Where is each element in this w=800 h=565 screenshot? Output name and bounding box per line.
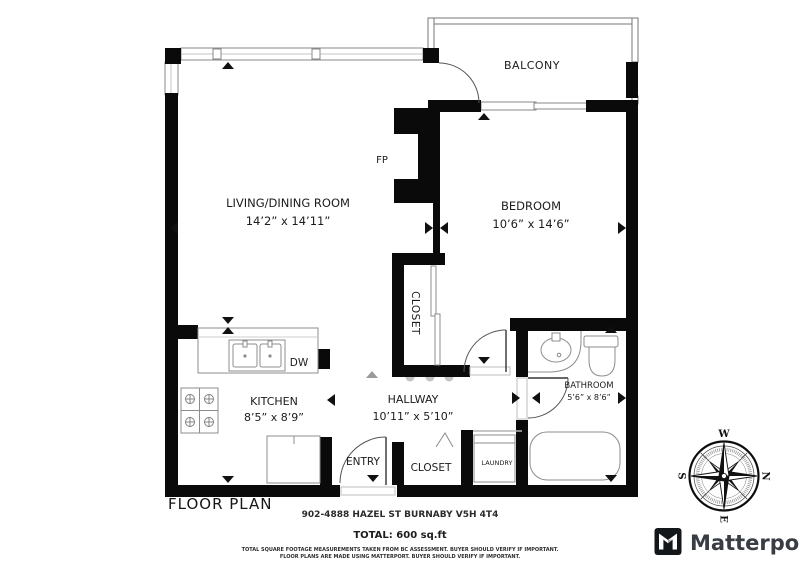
floor-plan-canvas: BALCONY LIVING/DINING ROOM 14’2” x 14’11… — [0, 0, 800, 565]
camera-marker — [366, 371, 378, 378]
faucet-icon — [243, 341, 247, 347]
wall — [165, 93, 178, 497]
total-area: TOTAL: 600 sq.ft — [0, 530, 800, 541]
bedroom-dimensions: 10’6” x 14’6” — [492, 217, 569, 231]
bathroom-sink — [541, 338, 571, 362]
wall — [461, 430, 473, 485]
dimension-arrow-up — [222, 62, 234, 69]
address: 902-4888 HAZEL ST BURNABY V5H 4T4 — [0, 510, 800, 520]
disclaimer: TOTAL SQUARE FOOTAGE MEASUREMENTS TAKEN … — [0, 547, 800, 561]
bifold-door — [436, 433, 453, 447]
wall — [392, 253, 445, 265]
laundry-label: LAUNDRY — [482, 459, 513, 467]
living-dining-label: LIVING/DINING ROOM — [226, 196, 350, 210]
balcony-rail-top — [428, 18, 638, 24]
hallway-label: HALLWAY — [388, 393, 439, 406]
compass-west-label: W — [717, 429, 730, 440]
doors — [340, 63, 568, 495]
dimension-arrow-left — [327, 394, 335, 406]
wall — [392, 442, 404, 485]
bedroom-balcony-slider — [534, 103, 588, 109]
entry-threshold — [341, 487, 395, 495]
door-knob-bump — [406, 377, 415, 382]
bathtub — [530, 432, 620, 480]
door-knob-bump — [426, 377, 435, 382]
faucet-icon — [552, 333, 560, 341]
entry-label: ENTRY — [346, 456, 381, 468]
wall — [433, 203, 440, 253]
dimension-arrow-left — [532, 392, 540, 404]
balcony-label: BALCONY — [504, 59, 560, 72]
wall — [516, 331, 528, 377]
bedroom-closet-label: CLOSET — [409, 291, 421, 335]
balcony-rail-right — [632, 18, 638, 62]
window-mullion — [213, 49, 221, 59]
toilet-tank — [584, 336, 618, 347]
wall — [423, 48, 439, 63]
fireplace-label: FP — [376, 155, 388, 166]
faucet-icon — [268, 341, 272, 347]
entry-closet-label: CLOSET — [411, 462, 452, 474]
sink-drain — [243, 354, 246, 357]
disclaimer-line-2: FLOOR PLANS ARE MADE USING MATTERPORT. B… — [0, 554, 800, 561]
dimension-arrow-down — [478, 357, 490, 364]
bedroom-threshold — [470, 367, 510, 375]
dimension-arrow-right — [618, 222, 626, 234]
kitchen-dimensions: 8’5” x 8’9” — [244, 411, 304, 424]
compass-hub — [721, 473, 726, 478]
wall — [165, 48, 181, 64]
walls — [165, 48, 638, 497]
dimension-arrow-down — [222, 317, 234, 324]
dimension-arrow-down — [367, 475, 379, 482]
dimension-arrow-right — [425, 222, 433, 234]
dimension-arrow-left — [440, 222, 448, 234]
dimension-arrow-up — [478, 113, 490, 120]
wall — [392, 365, 470, 377]
disclaimer-line-1: TOTAL SQUARE FOOTAGE MEASUREMENTS TAKEN … — [0, 547, 800, 554]
bedroom-balcony-window — [481, 102, 536, 110]
closet-slider-panel — [431, 266, 436, 316]
bathroom-label: BATHROOM — [564, 381, 613, 391]
fireplace-opening — [394, 134, 418, 179]
dimension-arrow-down — [222, 476, 234, 483]
wall — [510, 318, 638, 331]
dimension-arrow-right — [618, 392, 626, 404]
wall — [165, 325, 198, 339]
bathroom-dimensions: 5’6” x 8’6” — [567, 393, 611, 402]
hallway-dimensions: 10’11” x 5’10” — [373, 410, 454, 423]
bedroom-door-arc — [464, 330, 506, 372]
compass-south-label: S — [676, 472, 687, 479]
closet-slider-panel — [435, 314, 440, 365]
kitchen-label: KITCHEN — [250, 395, 298, 408]
living-dining-dimensions: 14’2” x 14’11” — [246, 214, 331, 228]
wall — [318, 349, 330, 369]
wall — [626, 110, 638, 497]
wall — [392, 265, 404, 373]
door-knob-bump — [445, 377, 454, 382]
window-mullion — [312, 49, 320, 59]
compass-north-label: N — [760, 471, 771, 480]
windows — [165, 18, 638, 110]
bedroom-label: BEDROOM — [501, 199, 561, 213]
wall — [626, 62, 638, 98]
wall — [320, 437, 332, 485]
dishwasher-label: DW — [290, 357, 309, 369]
toilet-bowl — [589, 347, 615, 376]
floor-plan-page: BALCONY LIVING/DINING ROOM 14’2” x 14’11… — [0, 0, 800, 565]
balcony-door-arc — [439, 63, 479, 103]
sink-drain — [268, 354, 271, 357]
